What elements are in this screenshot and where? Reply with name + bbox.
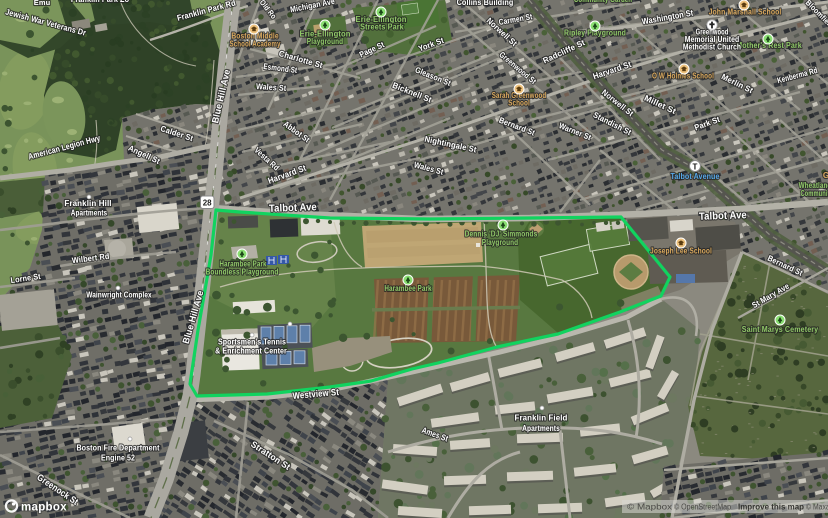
svg-text:Improve this map: Improve this map [738,503,804,512]
svg-text:Emu: Emu [34,0,51,7]
svg-text:Communit: Communit [800,189,828,198]
svg-text:Wales St: Wales St [256,81,287,93]
svg-text:Talbot Avenue: Talbot Avenue [670,171,719,181]
svg-text:Franklin Park Zo: Franklin Park Zo [71,0,129,4]
svg-text:G: G [823,171,828,180]
svg-text:T: T [693,162,698,171]
svg-text:& Enrichment Center: & Enrichment Center [215,346,287,356]
svg-text:© Mapbox: © Mapbox [627,503,672,512]
svg-text:School: School [508,99,530,108]
svg-text:Boston Fire Department: Boston Fire Department [76,443,159,453]
svg-text:Methodist Church: Methodist Church [683,43,741,52]
svg-text:Apartments: Apartments [71,209,108,218]
svg-text:Talbot Ave: Talbot Ave [699,209,747,223]
svg-text:© Maxar: © Maxar [806,503,828,512]
svg-text:28: 28 [203,199,212,208]
svg-text:Playground: Playground [307,37,343,46]
svg-text:Apartments: Apartments [522,423,560,433]
svg-text:Boundless Playground: Boundless Playground [206,268,279,277]
svg-text:Franklin Field: Franklin Field [515,413,568,423]
svg-text:School Academy: School Academy [230,40,281,49]
svg-text:Saint Marys Cemetery: Saint Marys Cemetery [742,324,819,334]
svg-text:Engine 52: Engine 52 [101,453,135,463]
svg-text:Franklin Hill: Franklin Hill [64,199,111,208]
svg-text:© OpenStreetMap: © OpenStreetMap [674,503,731,512]
svg-text:mapbox: mapbox [21,502,67,514]
svg-text:Wainwright Complex: Wainwright Complex [86,291,152,300]
svg-text:Streets Park: Streets Park [360,23,404,32]
svg-text:Playground: Playground [482,238,518,247]
svg-text:Community Garden: Community Garden [574,0,632,4]
svg-text:Talbot Ave: Talbot Ave [269,201,317,215]
svg-text:Collins Building: Collins Building [457,0,514,7]
